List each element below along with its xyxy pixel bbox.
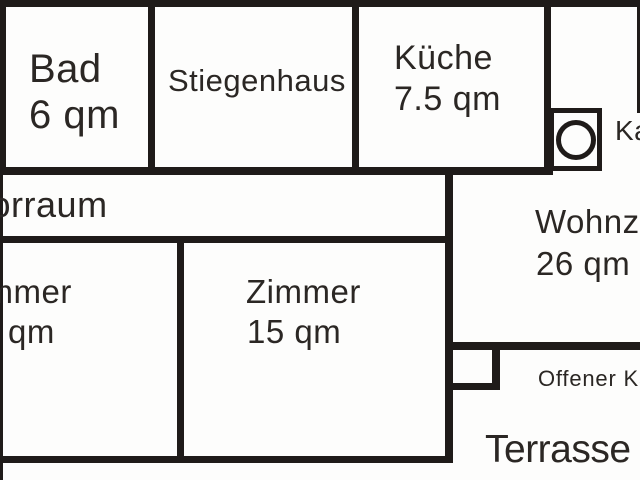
kachelofen-stove-icon (549, 108, 602, 171)
wall-zimmer-divider (177, 241, 184, 460)
wall-stiegenhaus-kueche (352, 0, 359, 174)
room-label-zimmer-left: Zimmer (0, 274, 72, 310)
wall-vorraum-bottom (0, 236, 452, 243)
wall-offener-kamin-bottom (445, 383, 500, 390)
room-label-zimmer: Zimmer (246, 274, 361, 310)
room-area-zimmer-left: qm (8, 314, 55, 350)
wall-main-vertical (445, 172, 453, 463)
feature-label-offener-kamin: Offener Kamin (538, 367, 640, 391)
room-area-bad: 6 qm (29, 94, 120, 137)
floor-plan: Bad 6 qm Stiegenhaus Küche 7.5 qm Kachel… (0, 0, 640, 480)
room-label-vorraum: Vorraum (0, 186, 108, 225)
feature-label-terrasse: Terrasse (485, 429, 631, 471)
room-label-stiegenhaus: Stiegenhaus (168, 64, 346, 97)
room-area-zimmer: 15 qm (247, 314, 341, 350)
wall-outer-bottom (0, 456, 452, 463)
room-label-bad: Bad (29, 48, 102, 91)
room-area-kueche: 7.5 qm (394, 81, 501, 118)
wall-upper-horizontal (0, 167, 553, 175)
room-label-wohnzimmer: Wohnzimmer (535, 204, 640, 240)
wall-outer-left-upper (0, 0, 6, 174)
wall-bad-stiegenhaus (148, 0, 155, 174)
room-label-kueche: Küche (394, 40, 493, 77)
stove-circle-icon (556, 120, 596, 160)
wall-wohnzimmer-bottom (445, 342, 640, 350)
feature-label-kachelofen: Kachelofen (615, 116, 640, 146)
room-area-wohnzimmer: 26 qm (536, 246, 630, 282)
